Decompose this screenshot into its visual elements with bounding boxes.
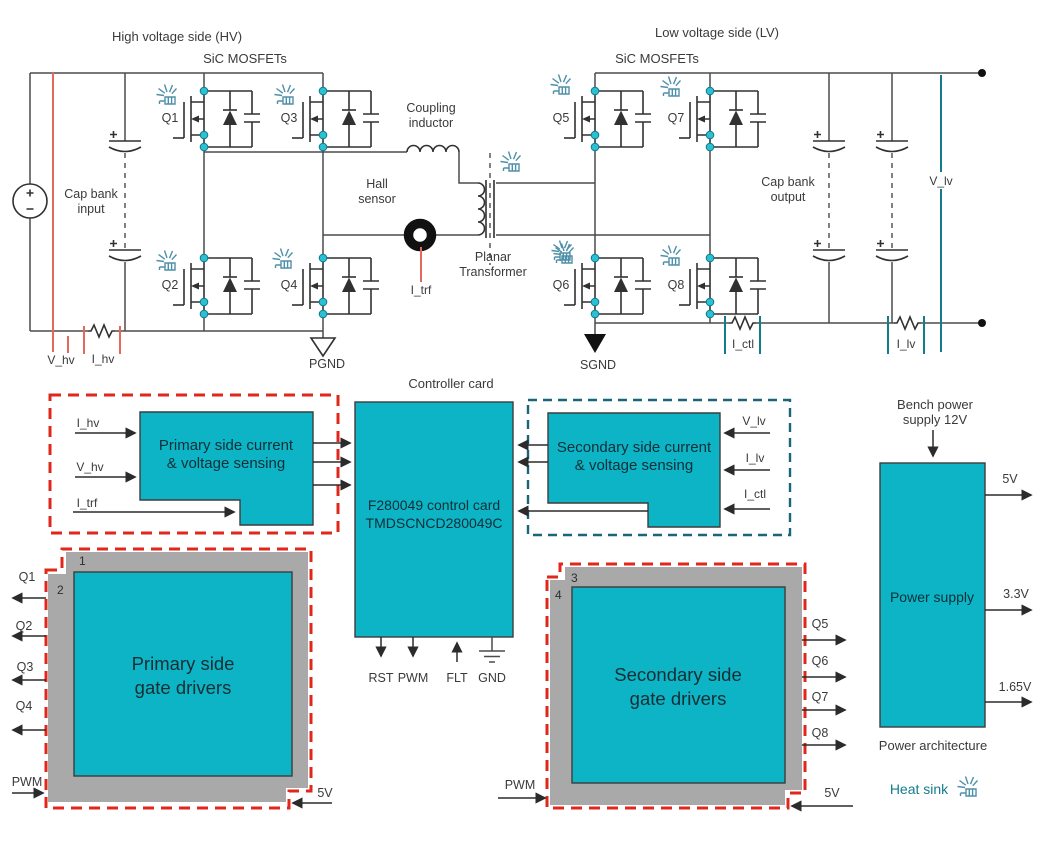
- primary-sensing: Primary side current & voltage sensing I…: [50, 395, 350, 533]
- power-architecture-caption: Power architecture: [879, 738, 987, 753]
- out-3v3-label: 3.3V: [1003, 587, 1029, 601]
- sgnd-ground-icon: [584, 323, 606, 353]
- board-number-1: 1: [79, 554, 86, 568]
- primary-pwm-label: PWM: [12, 775, 43, 789]
- primary-drivers-label-2: gate drivers: [135, 677, 232, 698]
- q1-label: Q1: [162, 111, 179, 125]
- q4-label: Q4: [281, 278, 298, 292]
- primary-gate-drivers: 1 2 Primary side gate drivers Q1 Q2 Q3 Q…: [12, 549, 334, 808]
- gnd-earth-icon: [479, 637, 505, 662]
- hv-title: High voltage side (HV): [112, 29, 242, 44]
- itrf-label: I_trf: [411, 283, 432, 297]
- power-architecture: Bench power supply 12V Power supply 5V 3…: [879, 397, 1032, 753]
- drv-out-q6-label: Q6: [812, 654, 829, 668]
- q6-label: Q6: [553, 278, 570, 292]
- lv-sic-mosfets-label: SiC MOSFETs: [615, 51, 699, 66]
- coupling-inductor-label-2: inductor: [409, 116, 453, 130]
- drv-out-q8-label: Q8: [812, 726, 829, 740]
- circuit-diagram: High voltage side (HV) SiC MOSFETs Cap b…: [0, 0, 1042, 843]
- secondary-drivers-label-2: gate drivers: [630, 688, 727, 709]
- secondary-pwm-label: PWM: [505, 778, 536, 792]
- cap-bank-output-label-2: output: [771, 190, 806, 204]
- hall-sensor-label-1: Hall: [366, 177, 388, 191]
- primary-in-ihv-label: I_hv: [77, 416, 100, 430]
- drv-out-q3-label: Q3: [17, 660, 34, 674]
- vhv-label: V_hv: [47, 353, 74, 367]
- board-number-2: 2: [57, 583, 64, 597]
- bench-supply-label-1: Bench power: [897, 397, 974, 412]
- secondary-in-ilv-label: I_lv: [746, 451, 765, 465]
- mosfet-q3: [292, 87, 379, 151]
- ihv-label: I_hv: [92, 352, 115, 366]
- pgnd-label: PGND: [309, 357, 345, 371]
- controller-chip-line2: TMDSCNCD280049C: [366, 515, 503, 531]
- legend: Heat sink: [890, 777, 978, 798]
- primary-in-itrf-label: I_trf: [77, 496, 98, 510]
- board-number-3: 3: [571, 571, 578, 585]
- coupling-inductor-label-1: Coupling: [406, 101, 455, 115]
- primary-sensing-label-1: Primary side current: [159, 437, 294, 454]
- secondary-sensing-label-1: Secondary side current: [557, 439, 712, 456]
- planar-transformer-label-1: Planar: [475, 250, 511, 264]
- power-supply-label: Power supply: [890, 589, 974, 605]
- rail-node-dot: [978, 69, 986, 77]
- board-number-4: 4: [555, 588, 562, 602]
- secondary-drivers-block: [572, 587, 785, 783]
- cap-bank-input: [109, 73, 141, 331]
- heat-sink-icon: [157, 251, 177, 271]
- heat-sink-icon: [273, 249, 293, 269]
- mosfet-q2: [173, 254, 260, 318]
- link-section: Coupling inductor Hall sensor I_trf Plan…: [204, 101, 710, 297]
- primary-drivers-label-1: Primary side: [132, 653, 235, 674]
- mosfet-q1: [173, 87, 260, 151]
- hall-sensor-label-2: sensor: [358, 192, 396, 206]
- secondary-gate-drivers: 3 4 Secondary side gate drivers Q5 Q6 Q7…: [498, 564, 853, 808]
- mosfet-q7: [679, 87, 766, 151]
- bench-supply-label-2: supply 12V: [903, 412, 968, 427]
- pgnd-ground-icon: [311, 331, 335, 356]
- tank-wire-drop: [459, 152, 478, 183]
- q7-label: Q7: [668, 111, 685, 125]
- secondary-5v-label: 5V: [824, 786, 840, 800]
- diagram-canvas: High voltage side (HV) SiC MOSFETs Cap b…: [0, 0, 1042, 843]
- drv-out-q4-label: Q4: [16, 699, 33, 713]
- heat-sink-icon: [501, 152, 521, 172]
- ilv-shunt-resistor: [894, 317, 921, 329]
- controller-title: Controller card: [408, 376, 493, 391]
- drv-out-q1-label: Q1: [19, 570, 36, 584]
- hv-section: High voltage side (HV) SiC MOSFETs Cap b…: [13, 29, 379, 371]
- flt-pin-label: FLT: [446, 671, 468, 685]
- lv-title: Low voltage side (LV): [655, 25, 779, 40]
- mosfet-q4: [292, 254, 379, 318]
- controller-chip-line1: F280049 control card: [368, 497, 500, 513]
- coupling-inductor-icon: [407, 146, 459, 152]
- drv-out-q2-label: Q2: [16, 619, 33, 633]
- q8-label: Q8: [668, 278, 685, 292]
- primary-sensing-label-2: & voltage sensing: [167, 455, 285, 472]
- q3-label: Q3: [281, 111, 298, 125]
- cap-bank-output-label-1: Cap bank: [761, 175, 815, 189]
- cap-bank-input-label-2: input: [77, 202, 105, 216]
- lv-section: Low voltage side (LV) SiC MOSFETs Q5 Q6 …: [551, 25, 987, 372]
- secondary-sensing-label-2: & voltage sensing: [575, 457, 693, 474]
- voltage-source-icon: [13, 73, 47, 331]
- primary-in-vhv-label: V_hv: [76, 460, 103, 474]
- sgnd-label: SGND: [580, 358, 616, 372]
- vlv-label: V_lv: [929, 174, 952, 188]
- hv-sic-mosfets-label: SiC MOSFETs: [203, 51, 287, 66]
- q5-label: Q5: [553, 111, 570, 125]
- hall-sensor-icon: [409, 224, 432, 247]
- gnd-pin-label: GND: [478, 671, 506, 685]
- hv-shunt-resistor: [88, 325, 115, 337]
- mosfet-q5: [564, 87, 651, 151]
- rst-pin-label: RST: [369, 671, 394, 685]
- drv-out-q5-label: Q5: [812, 617, 829, 631]
- secondary-in-ictl-label: I_ctl: [744, 487, 766, 501]
- heat-sink-icon: [958, 777, 978, 797]
- heat-sink-icon: [551, 75, 571, 95]
- heat-sink-icon: [661, 246, 681, 266]
- controller-card: Controller card F280049 control card TMD…: [355, 376, 513, 685]
- heat-sink-icon: [661, 77, 681, 97]
- rail-node-dot: [978, 319, 986, 327]
- secondary-wires: [496, 183, 710, 235]
- secondary-drivers-label-1: Secondary side: [614, 664, 742, 685]
- cap-bank-output: [813, 73, 908, 323]
- planar-transformer-label-2: Transformer: [459, 265, 527, 279]
- heat-sink-icon: [275, 85, 295, 105]
- heat-sink-icon: [157, 85, 177, 105]
- out-1v65-label: 1.65V: [999, 680, 1032, 694]
- planar-transformer-icon: [478, 153, 494, 265]
- q2-label: Q2: [162, 278, 179, 292]
- mosfet-q6: [564, 254, 651, 318]
- drv-out-q7-label: Q7: [812, 690, 829, 704]
- pwm-pin-label: PWM: [398, 671, 429, 685]
- mosfet-q8: [679, 254, 766, 318]
- out-5v-label: 5V: [1002, 472, 1018, 486]
- primary-drivers-block: [74, 572, 292, 776]
- cap-bank-input-label-1: Cap bank: [64, 187, 118, 201]
- ilv-label: I_lv: [897, 337, 916, 351]
- heat-sink-legend-label: Heat sink: [890, 781, 949, 797]
- primary-5v-label: 5V: [317, 786, 333, 800]
- secondary-sensing: Secondary side current & voltage sensing…: [519, 400, 790, 535]
- secondary-in-vlv-label: V_lv: [742, 414, 765, 428]
- ictl-label: I_ctl: [732, 337, 754, 351]
- ictl-shunt-resistor: [729, 317, 756, 329]
